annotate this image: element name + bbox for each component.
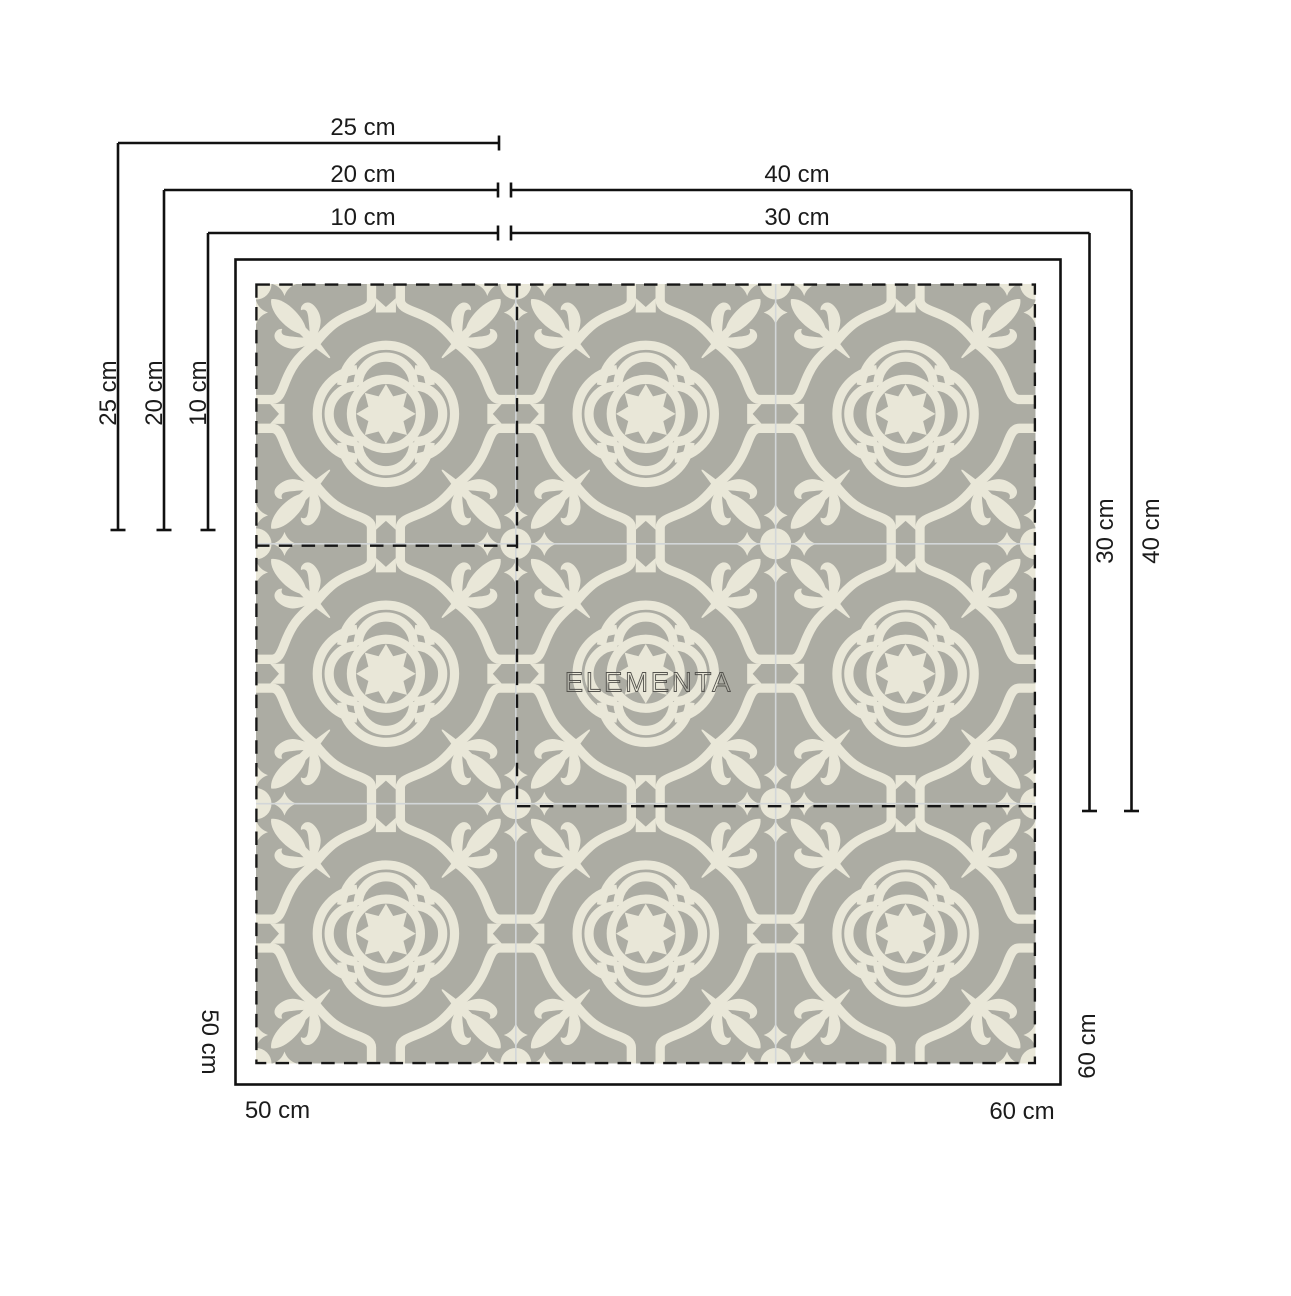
svg-text:40 cm: 40 cm <box>764 161 829 188</box>
svg-text:30 cm: 30 cm <box>764 204 829 231</box>
svg-text:60 cm: 60 cm <box>989 1098 1054 1125</box>
svg-text:ELEMENTA: ELEMENTA <box>565 667 734 698</box>
svg-text:25 cm: 25 cm <box>330 114 395 141</box>
svg-text:50 cm: 50 cm <box>245 1097 310 1124</box>
svg-text:40 cm: 40 cm <box>1138 498 1165 563</box>
svg-text:25 cm: 25 cm <box>95 360 122 425</box>
svg-text:20 cm: 20 cm <box>330 161 395 188</box>
svg-text:10 cm: 10 cm <box>185 360 212 425</box>
svg-text:20 cm: 20 cm <box>141 360 168 425</box>
svg-text:10 cm: 10 cm <box>330 204 395 231</box>
svg-text:30 cm: 30 cm <box>1092 498 1119 563</box>
svg-text:50 cm: 50 cm <box>196 1009 223 1074</box>
svg-text:60 cm: 60 cm <box>1074 1013 1101 1078</box>
